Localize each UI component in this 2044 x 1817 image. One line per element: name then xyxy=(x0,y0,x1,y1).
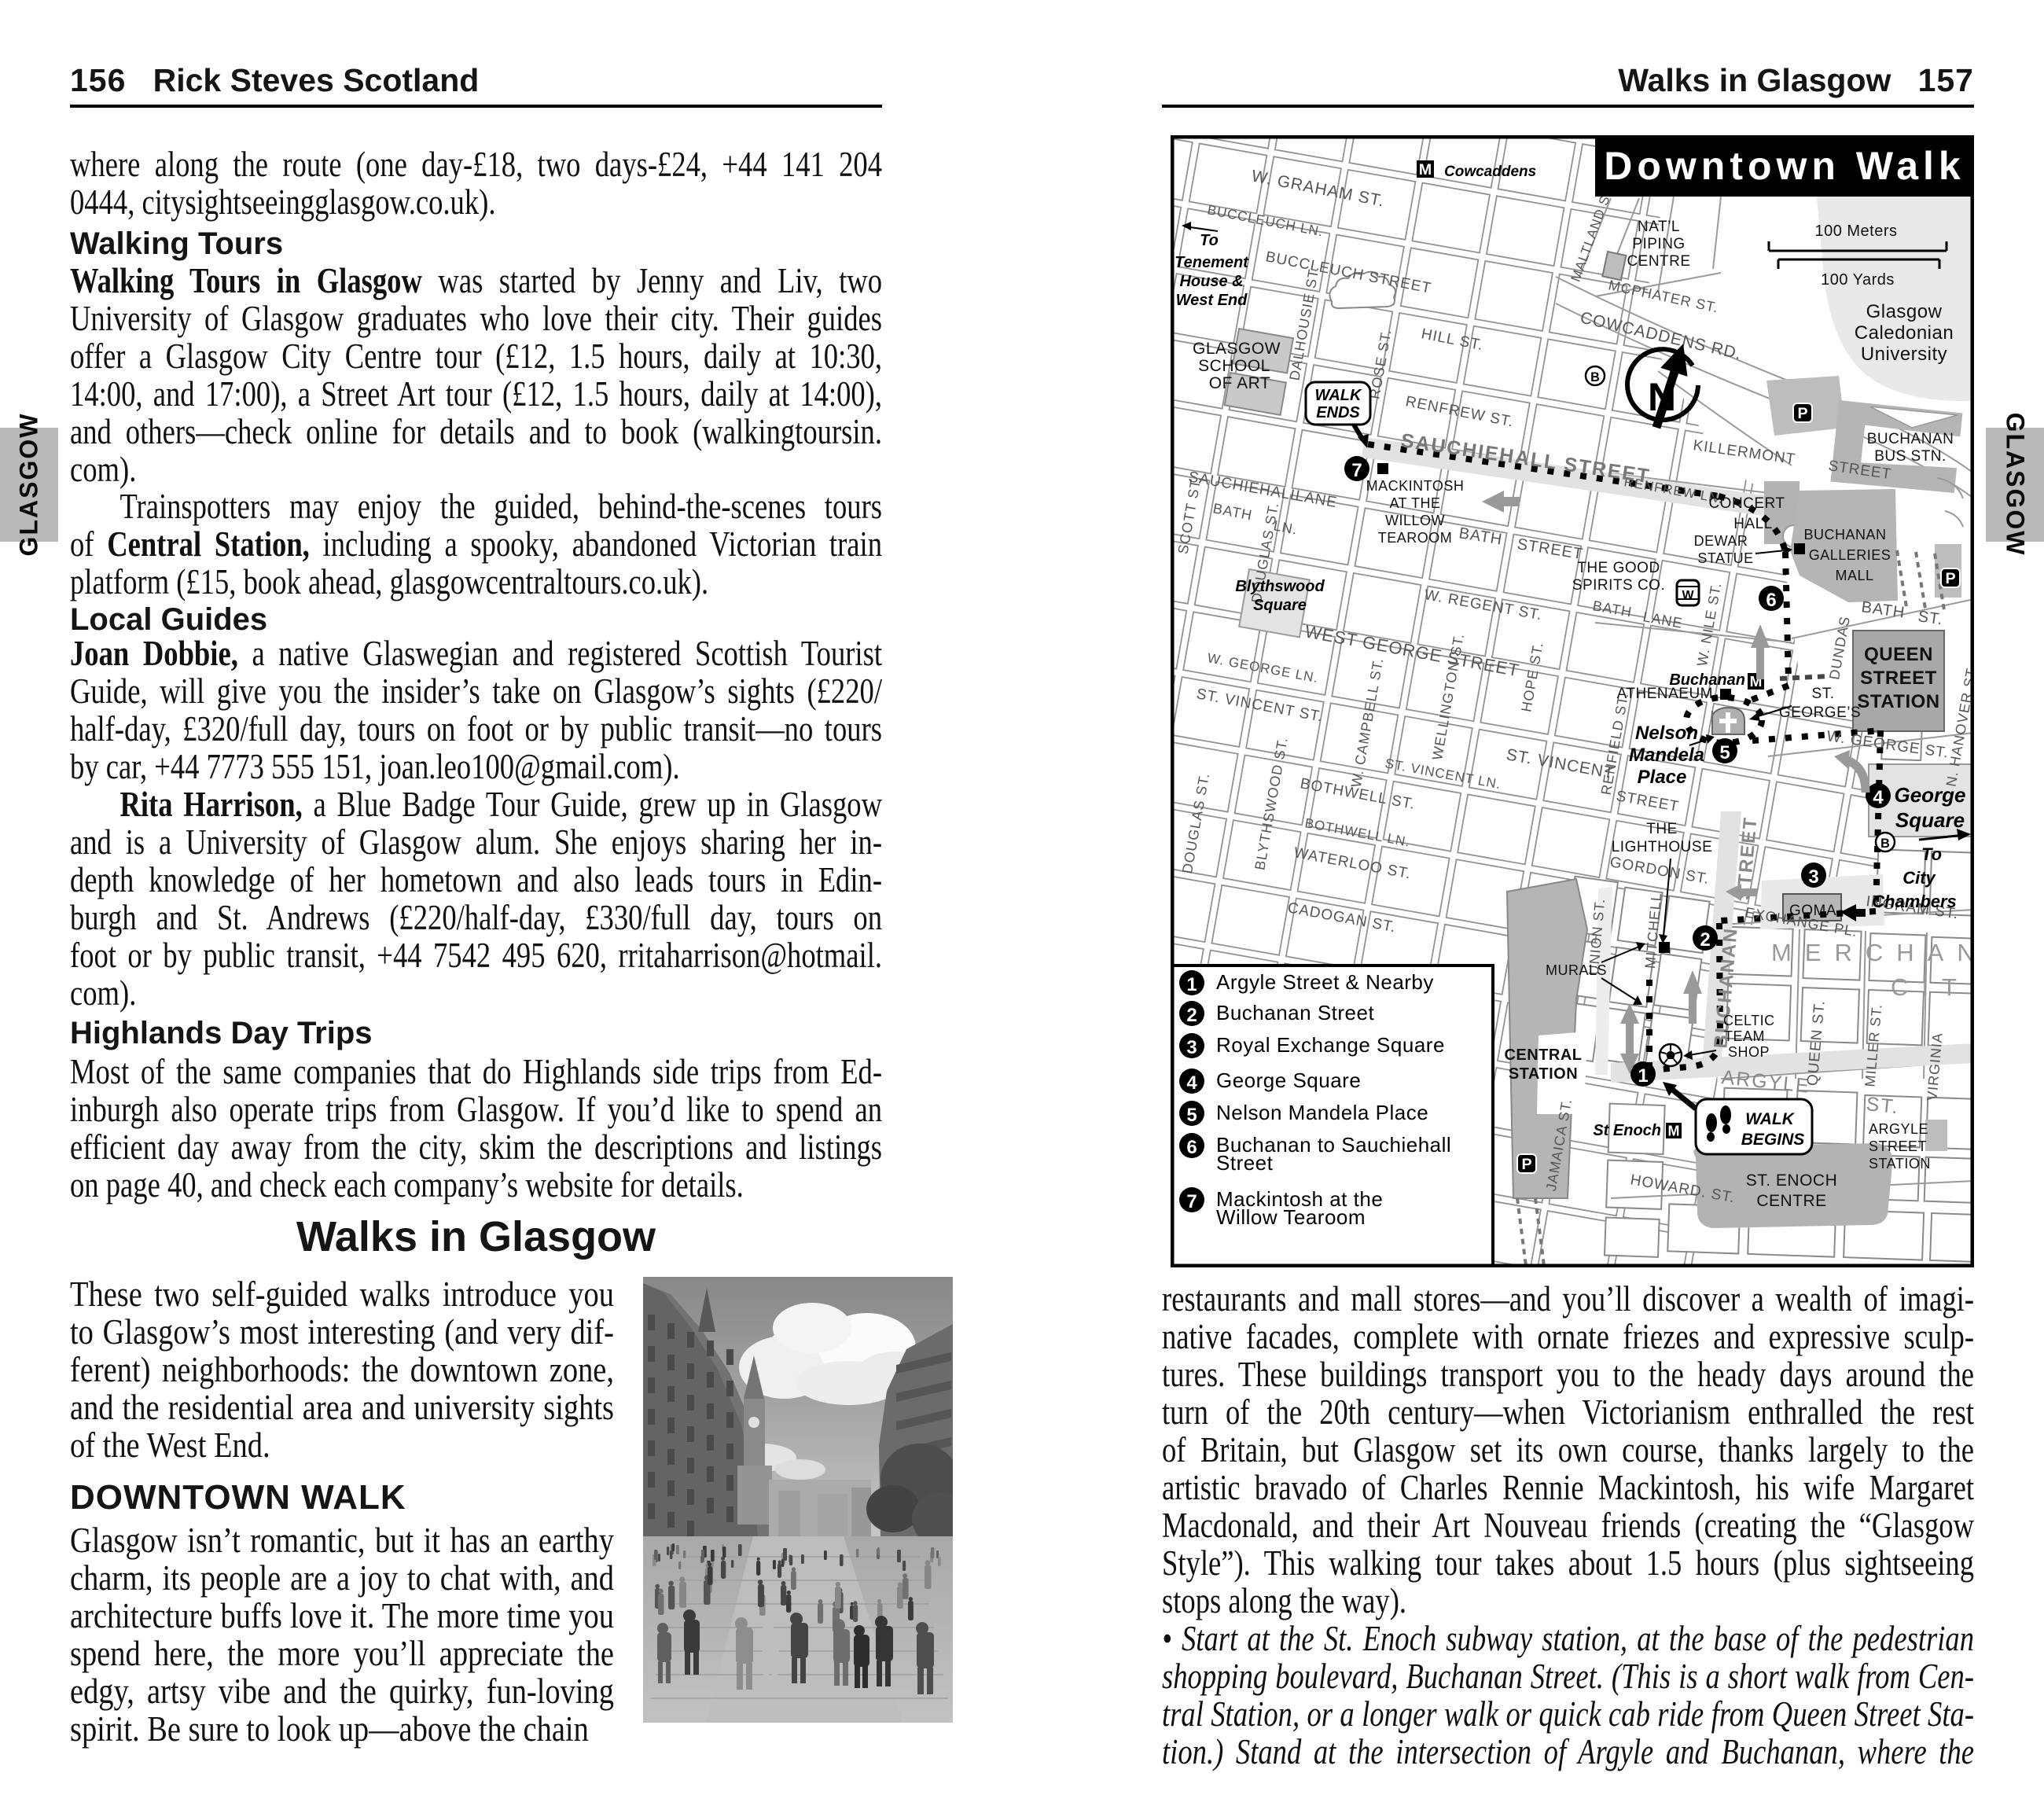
svg-text:P: P xyxy=(1945,570,1955,587)
svg-text:Tenement: Tenement xyxy=(1175,254,1249,271)
svg-text:STATION: STATION xyxy=(1509,1065,1578,1083)
svg-text:BUS STN.: BUS STN. xyxy=(1874,448,1947,465)
svg-text:PIPING: PIPING xyxy=(1632,236,1685,252)
svg-text:AT THE: AT THE xyxy=(1389,495,1440,511)
svg-text:CENTRE: CENTRE xyxy=(1627,253,1690,270)
svg-text:West End: West End xyxy=(1176,292,1248,309)
svg-text:CITY: CITY xyxy=(1891,973,1974,1001)
svg-text:Argyle Street & Nearby: Argyle Street & Nearby xyxy=(1216,970,1434,994)
svg-text:Royal Exchange Square: Royal Exchange Square xyxy=(1216,1033,1445,1057)
svg-text:St Enoch: St Enoch xyxy=(1593,1122,1661,1139)
svg-text:100 Meters: 100 Meters xyxy=(1814,223,1897,240)
svg-text:STATUE: STATUE xyxy=(1697,550,1753,566)
svg-text:2: 2 xyxy=(1186,1005,1197,1026)
svg-text:DEWAR: DEWAR xyxy=(1694,533,1748,549)
svg-text:BEGINS: BEGINS xyxy=(1741,1131,1805,1149)
svg-text:Blythswood: Blythswood xyxy=(1235,578,1325,595)
svg-text:HALL: HALL xyxy=(1733,516,1773,532)
svg-text:N: N xyxy=(1648,375,1676,419)
svg-text:P: P xyxy=(1521,1156,1531,1173)
svg-text:7: 7 xyxy=(1186,1191,1197,1212)
svg-text:Place: Place xyxy=(1638,767,1687,788)
svg-text:4: 4 xyxy=(1186,1072,1197,1094)
svg-text:STATION: STATION xyxy=(1857,691,1939,712)
svg-text:ENDS: ENDS xyxy=(1316,404,1360,421)
svg-text:BUCHANAN: BUCHANAN xyxy=(1803,527,1886,543)
svg-text:ST.: ST. xyxy=(1812,686,1835,702)
svg-text:Cowcaddens: Cowcaddens xyxy=(1444,164,1536,180)
svg-text:MURALS: MURALS xyxy=(1546,962,1607,978)
svg-text:CELTIC: CELTIC xyxy=(1723,1013,1775,1028)
svg-text:WILLOW: WILLOW xyxy=(1385,513,1445,528)
svg-text:Chambers: Chambers xyxy=(1872,892,1957,911)
svg-text:To: To xyxy=(1921,844,1942,864)
svg-text:CONCERT: CONCERT xyxy=(1708,495,1785,512)
svg-text:ST. ENOCH: ST. ENOCH xyxy=(1746,1171,1838,1190)
svg-text:CENTRE: CENTRE xyxy=(1756,1192,1826,1210)
svg-text:STATION: STATION xyxy=(1869,1156,1931,1171)
svg-text:George Square: George Square xyxy=(1216,1068,1361,1092)
svg-text:6: 6 xyxy=(1766,590,1776,611)
svg-text:NAT’L: NAT’L xyxy=(1638,219,1680,235)
svg-text:STREET: STREET xyxy=(1860,668,1937,689)
svg-text:STREET: STREET xyxy=(1869,1138,1927,1154)
svg-text:3: 3 xyxy=(1186,1037,1197,1058)
svg-text:TEAROOM: TEAROOM xyxy=(1378,530,1453,546)
svg-text:Street: Street xyxy=(1216,1151,1274,1175)
svg-text:1: 1 xyxy=(1186,974,1197,995)
svg-text:Square: Square xyxy=(1895,808,1965,832)
svg-text:THE: THE xyxy=(1646,821,1678,837)
svg-text:MERCHANT: MERCHANT xyxy=(1771,939,1974,966)
svg-text:GALLERIES: GALLERIES xyxy=(1809,547,1891,563)
svg-text:1: 1 xyxy=(1638,1065,1648,1087)
svg-text:2: 2 xyxy=(1700,929,1710,951)
svg-text:Caledonian: Caledonian xyxy=(1855,322,1954,344)
svg-text:WALK: WALK xyxy=(1315,387,1362,404)
svg-text:GLASGOW: GLASGOW xyxy=(1193,340,1281,358)
svg-text:MACKINTOSH: MACKINTOSH xyxy=(1366,478,1465,494)
svg-text:City: City xyxy=(1902,868,1936,888)
svg-text:W: W xyxy=(1682,589,1694,602)
svg-text:ST.: ST. xyxy=(1917,608,1944,628)
svg-text:Glasgow: Glasgow xyxy=(1866,301,1943,322)
svg-text:ST.: ST. xyxy=(1865,1093,1900,1118)
svg-text:7: 7 xyxy=(1351,460,1362,481)
svg-text:5: 5 xyxy=(1186,1105,1197,1126)
svg-text:House &: House & xyxy=(1179,273,1243,290)
svg-text:SCHOOL: SCHOOL xyxy=(1198,357,1270,375)
svg-text:Mandela: Mandela xyxy=(1629,745,1704,766)
svg-text:To: To xyxy=(1200,232,1219,249)
svg-text:University: University xyxy=(1861,344,1947,365)
svg-text:CENTRAL: CENTRAL xyxy=(1504,1046,1582,1064)
svg-text:Nelson: Nelson xyxy=(1635,723,1698,744)
svg-text:Nelson Mandela Place: Nelson Mandela Place xyxy=(1216,1101,1428,1124)
svg-text:4: 4 xyxy=(1873,787,1884,808)
svg-text:SPIRITS CO.: SPIRITS CO. xyxy=(1572,577,1665,594)
svg-text:Downtown Walk: Downtown Walk xyxy=(1604,144,1965,188)
svg-text:100 Yards: 100 Yards xyxy=(1821,271,1895,289)
svg-text:TEAM: TEAM xyxy=(1724,1028,1765,1044)
svg-text:GOMA: GOMA xyxy=(1789,903,1836,919)
svg-text:SHOP: SHOP xyxy=(1728,1044,1770,1060)
svg-text:6: 6 xyxy=(1186,1137,1197,1158)
svg-text:Buchanan: Buchanan xyxy=(1669,671,1745,689)
svg-text:WALK: WALK xyxy=(1745,1110,1796,1128)
svg-text:Willow Tearoom: Willow Tearoom xyxy=(1216,1205,1366,1229)
svg-text:5: 5 xyxy=(1719,742,1730,763)
svg-text:THE GOOD: THE GOOD xyxy=(1577,560,1660,576)
svg-text:B: B xyxy=(1590,370,1600,384)
svg-text:BUCHANAN: BUCHANAN xyxy=(1867,431,1954,447)
svg-text:M: M xyxy=(1419,161,1432,178)
svg-text:MALL: MALL xyxy=(1835,568,1873,583)
svg-text:Square: Square xyxy=(1253,597,1307,614)
svg-text:M: M xyxy=(1668,1123,1680,1138)
svg-text:Buchanan Street: Buchanan Street xyxy=(1216,1001,1374,1024)
svg-text:P: P xyxy=(1797,405,1807,422)
svg-text:3: 3 xyxy=(1808,866,1818,888)
svg-text:B: B xyxy=(1880,837,1890,851)
svg-text:OF ART: OF ART xyxy=(1209,374,1270,392)
svg-text:QUEEN: QUEEN xyxy=(1864,644,1933,665)
svg-text:ARGYLE: ARGYLE xyxy=(1869,1121,1928,1137)
svg-text:George: George xyxy=(1894,783,1965,807)
svg-text:LIGHTHOUSE: LIGHTHOUSE xyxy=(1612,839,1713,855)
